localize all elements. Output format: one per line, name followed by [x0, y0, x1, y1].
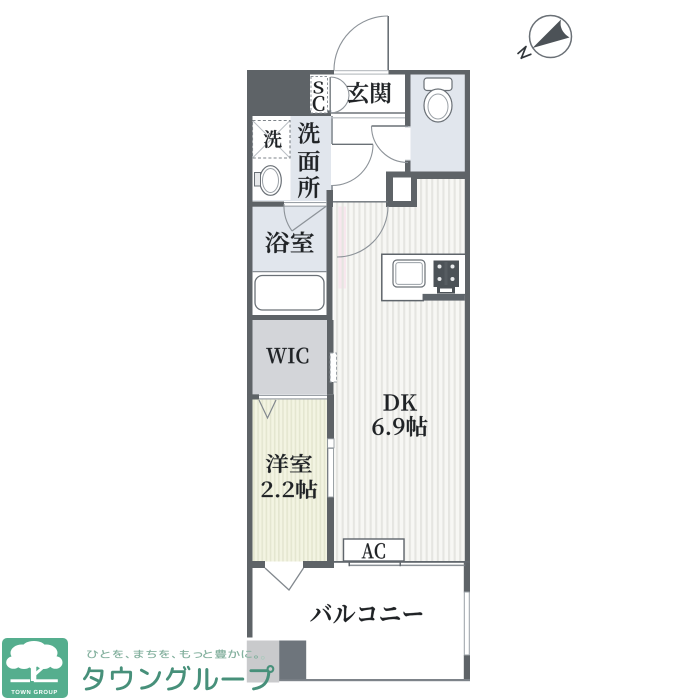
svg-text:TOWN GROUP: TOWN GROUP	[11, 689, 58, 696]
